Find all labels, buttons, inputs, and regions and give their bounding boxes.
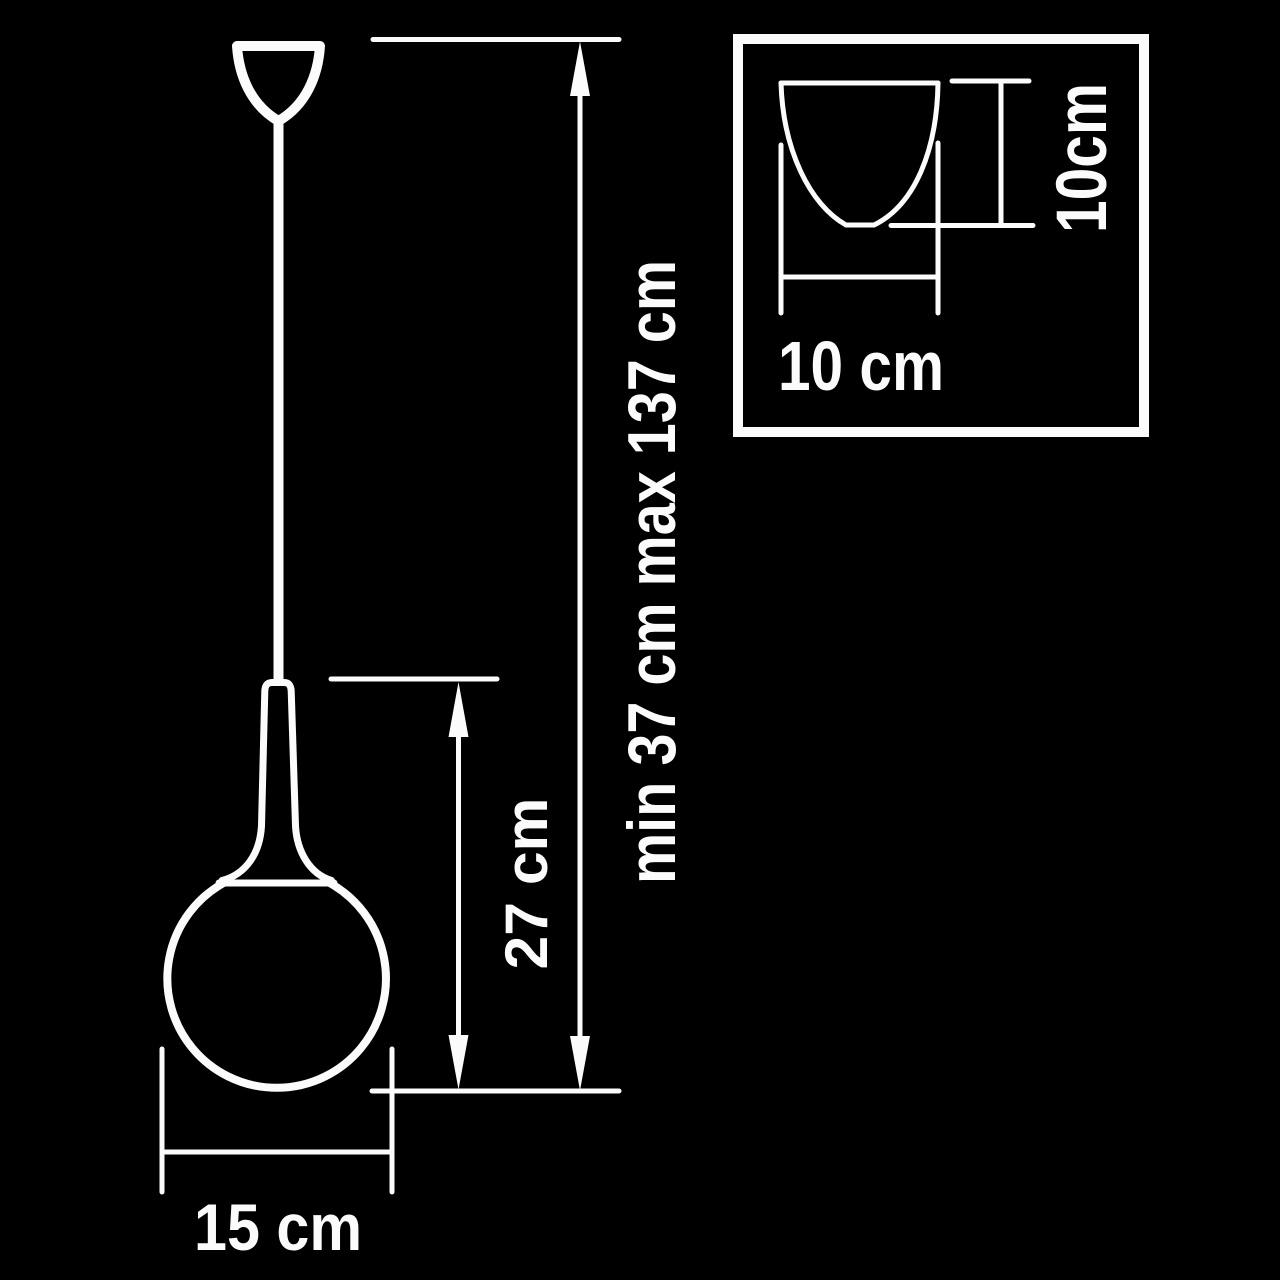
svg-text:27 cm: 27 cm <box>493 798 560 970</box>
svg-text:min 37 cm max 137 cm: min 37 cm max 137 cm <box>614 260 690 884</box>
svg-text:15 cm: 15 cm <box>194 1190 362 1264</box>
svg-text:10cm: 10cm <box>1043 83 1122 233</box>
svg-text:10 cm: 10 cm <box>778 327 944 405</box>
